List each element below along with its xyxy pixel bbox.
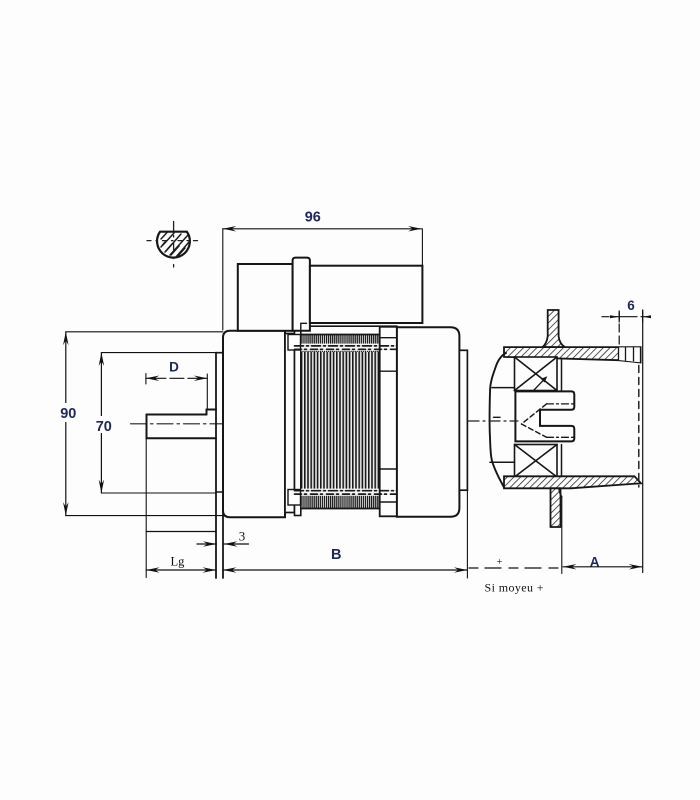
svg-text:90: 90	[60, 406, 76, 422]
svg-text:B: B	[331, 547, 341, 563]
svg-text:6: 6	[627, 298, 635, 313]
svg-text:Si moyeu +: Si moyeu +	[485, 581, 544, 595]
svg-text:+: +	[497, 557, 503, 568]
svg-text:A: A	[590, 555, 600, 570]
svg-text:70: 70	[96, 419, 112, 435]
svg-text:Lg: Lg	[171, 555, 186, 569]
svg-text:3: 3	[239, 529, 246, 544]
svg-text:96: 96	[305, 210, 321, 226]
svg-text:D: D	[169, 359, 179, 374]
